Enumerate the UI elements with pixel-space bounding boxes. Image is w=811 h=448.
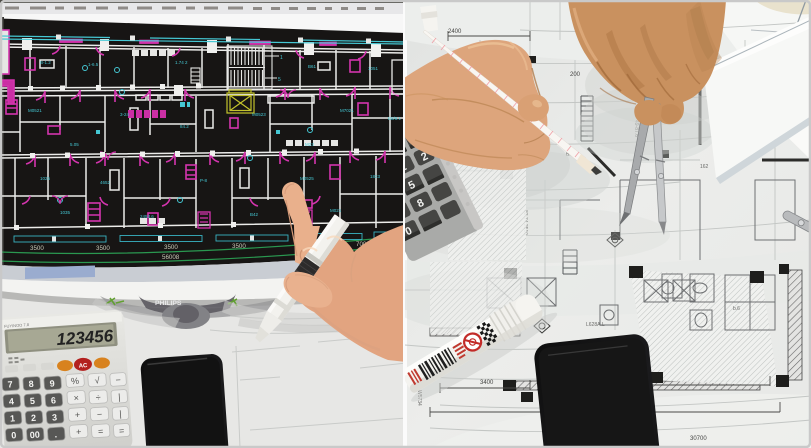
svg-text:1051: 1051	[368, 66, 379, 71]
svg-text:1035: 1035	[60, 210, 71, 215]
svg-text:4: 4	[9, 396, 15, 406]
svg-text:3500: 3500	[164, 244, 178, 251]
svg-text:3500: 3500	[232, 243, 246, 250]
svg-text:=: =	[119, 426, 125, 436]
svg-text:M7021: M7021	[340, 108, 354, 113]
svg-text:9: 9	[49, 378, 55, 388]
svg-text:1: 1	[280, 55, 283, 61]
svg-text:b.6: b.6	[733, 306, 740, 312]
svg-text:0: 0	[11, 430, 17, 440]
svg-text:30700: 30700	[690, 436, 707, 442]
svg-text:2453.6: 2453.6	[140, 214, 154, 219]
svg-text:56008: 56008	[162, 254, 180, 261]
svg-text:1025: 1025	[40, 176, 51, 181]
svg-text:5: 5	[30, 396, 36, 406]
svg-text:−: −	[97, 409, 103, 419]
svg-text:3-24: 3-24	[120, 112, 130, 117]
svg-text:00: 00	[29, 430, 40, 441]
svg-text:2400: 2400	[448, 29, 462, 35]
svg-text:1: 1	[10, 413, 16, 423]
svg-text:123456: 123456	[56, 326, 114, 349]
svg-text:M23: M23	[305, 142, 314, 147]
svg-text:M0525: M0525	[300, 176, 314, 181]
svg-text:200: 200	[570, 72, 581, 78]
svg-text:√: √	[94, 375, 100, 385]
svg-text:M021: M021	[330, 208, 342, 213]
svg-text:+: +	[76, 427, 82, 437]
svg-text:AC: AC	[79, 363, 89, 370]
svg-text:5.05: 5.05	[70, 142, 79, 147]
svg-text:M0521: M0521	[28, 108, 42, 113]
svg-text:84.2: 84.2	[180, 124, 189, 129]
svg-text:+: +	[74, 410, 80, 420]
svg-text:÷: ÷	[95, 392, 101, 402]
svg-text:162: 162	[700, 164, 709, 170]
svg-text:B-1.2: B-1.2	[40, 60, 51, 65]
svg-text:4652: 4652	[100, 180, 111, 185]
svg-text:B61: B61	[308, 64, 317, 69]
svg-text:−: −	[115, 375, 121, 385]
svg-text:=: =	[98, 426, 104, 436]
svg-text:8: 8	[28, 379, 34, 389]
svg-text:PHILIPS: PHILIPS	[155, 300, 182, 307]
svg-text:B8/8.1: B8/8.1	[388, 116, 402, 121]
svg-text:7: 7	[7, 379, 13, 389]
svg-text:L628A.L: L628A.L	[586, 322, 605, 328]
svg-text:%: %	[71, 376, 80, 387]
svg-text:B42: B42	[250, 212, 259, 217]
svg-text:5: 5	[278, 77, 281, 83]
svg-text:1823: 1823	[370, 174, 381, 179]
svg-text:3500: 3500	[30, 245, 44, 252]
svg-text:×: ×	[73, 393, 79, 403]
svg-text:3500: 3500	[96, 245, 110, 252]
svg-text:M0523: M0523	[252, 112, 266, 117]
svg-text:P-8: P-8	[200, 178, 208, 183]
svg-text:6: 6	[51, 395, 57, 405]
svg-text:2: 2	[31, 413, 37, 423]
svg-text:3400: 3400	[480, 380, 494, 386]
svg-text:3: 3	[52, 412, 58, 422]
svg-text:1-6.5: 1-6.5	[88, 62, 99, 67]
svg-text:1.74 2: 1.74 2	[175, 60, 188, 65]
